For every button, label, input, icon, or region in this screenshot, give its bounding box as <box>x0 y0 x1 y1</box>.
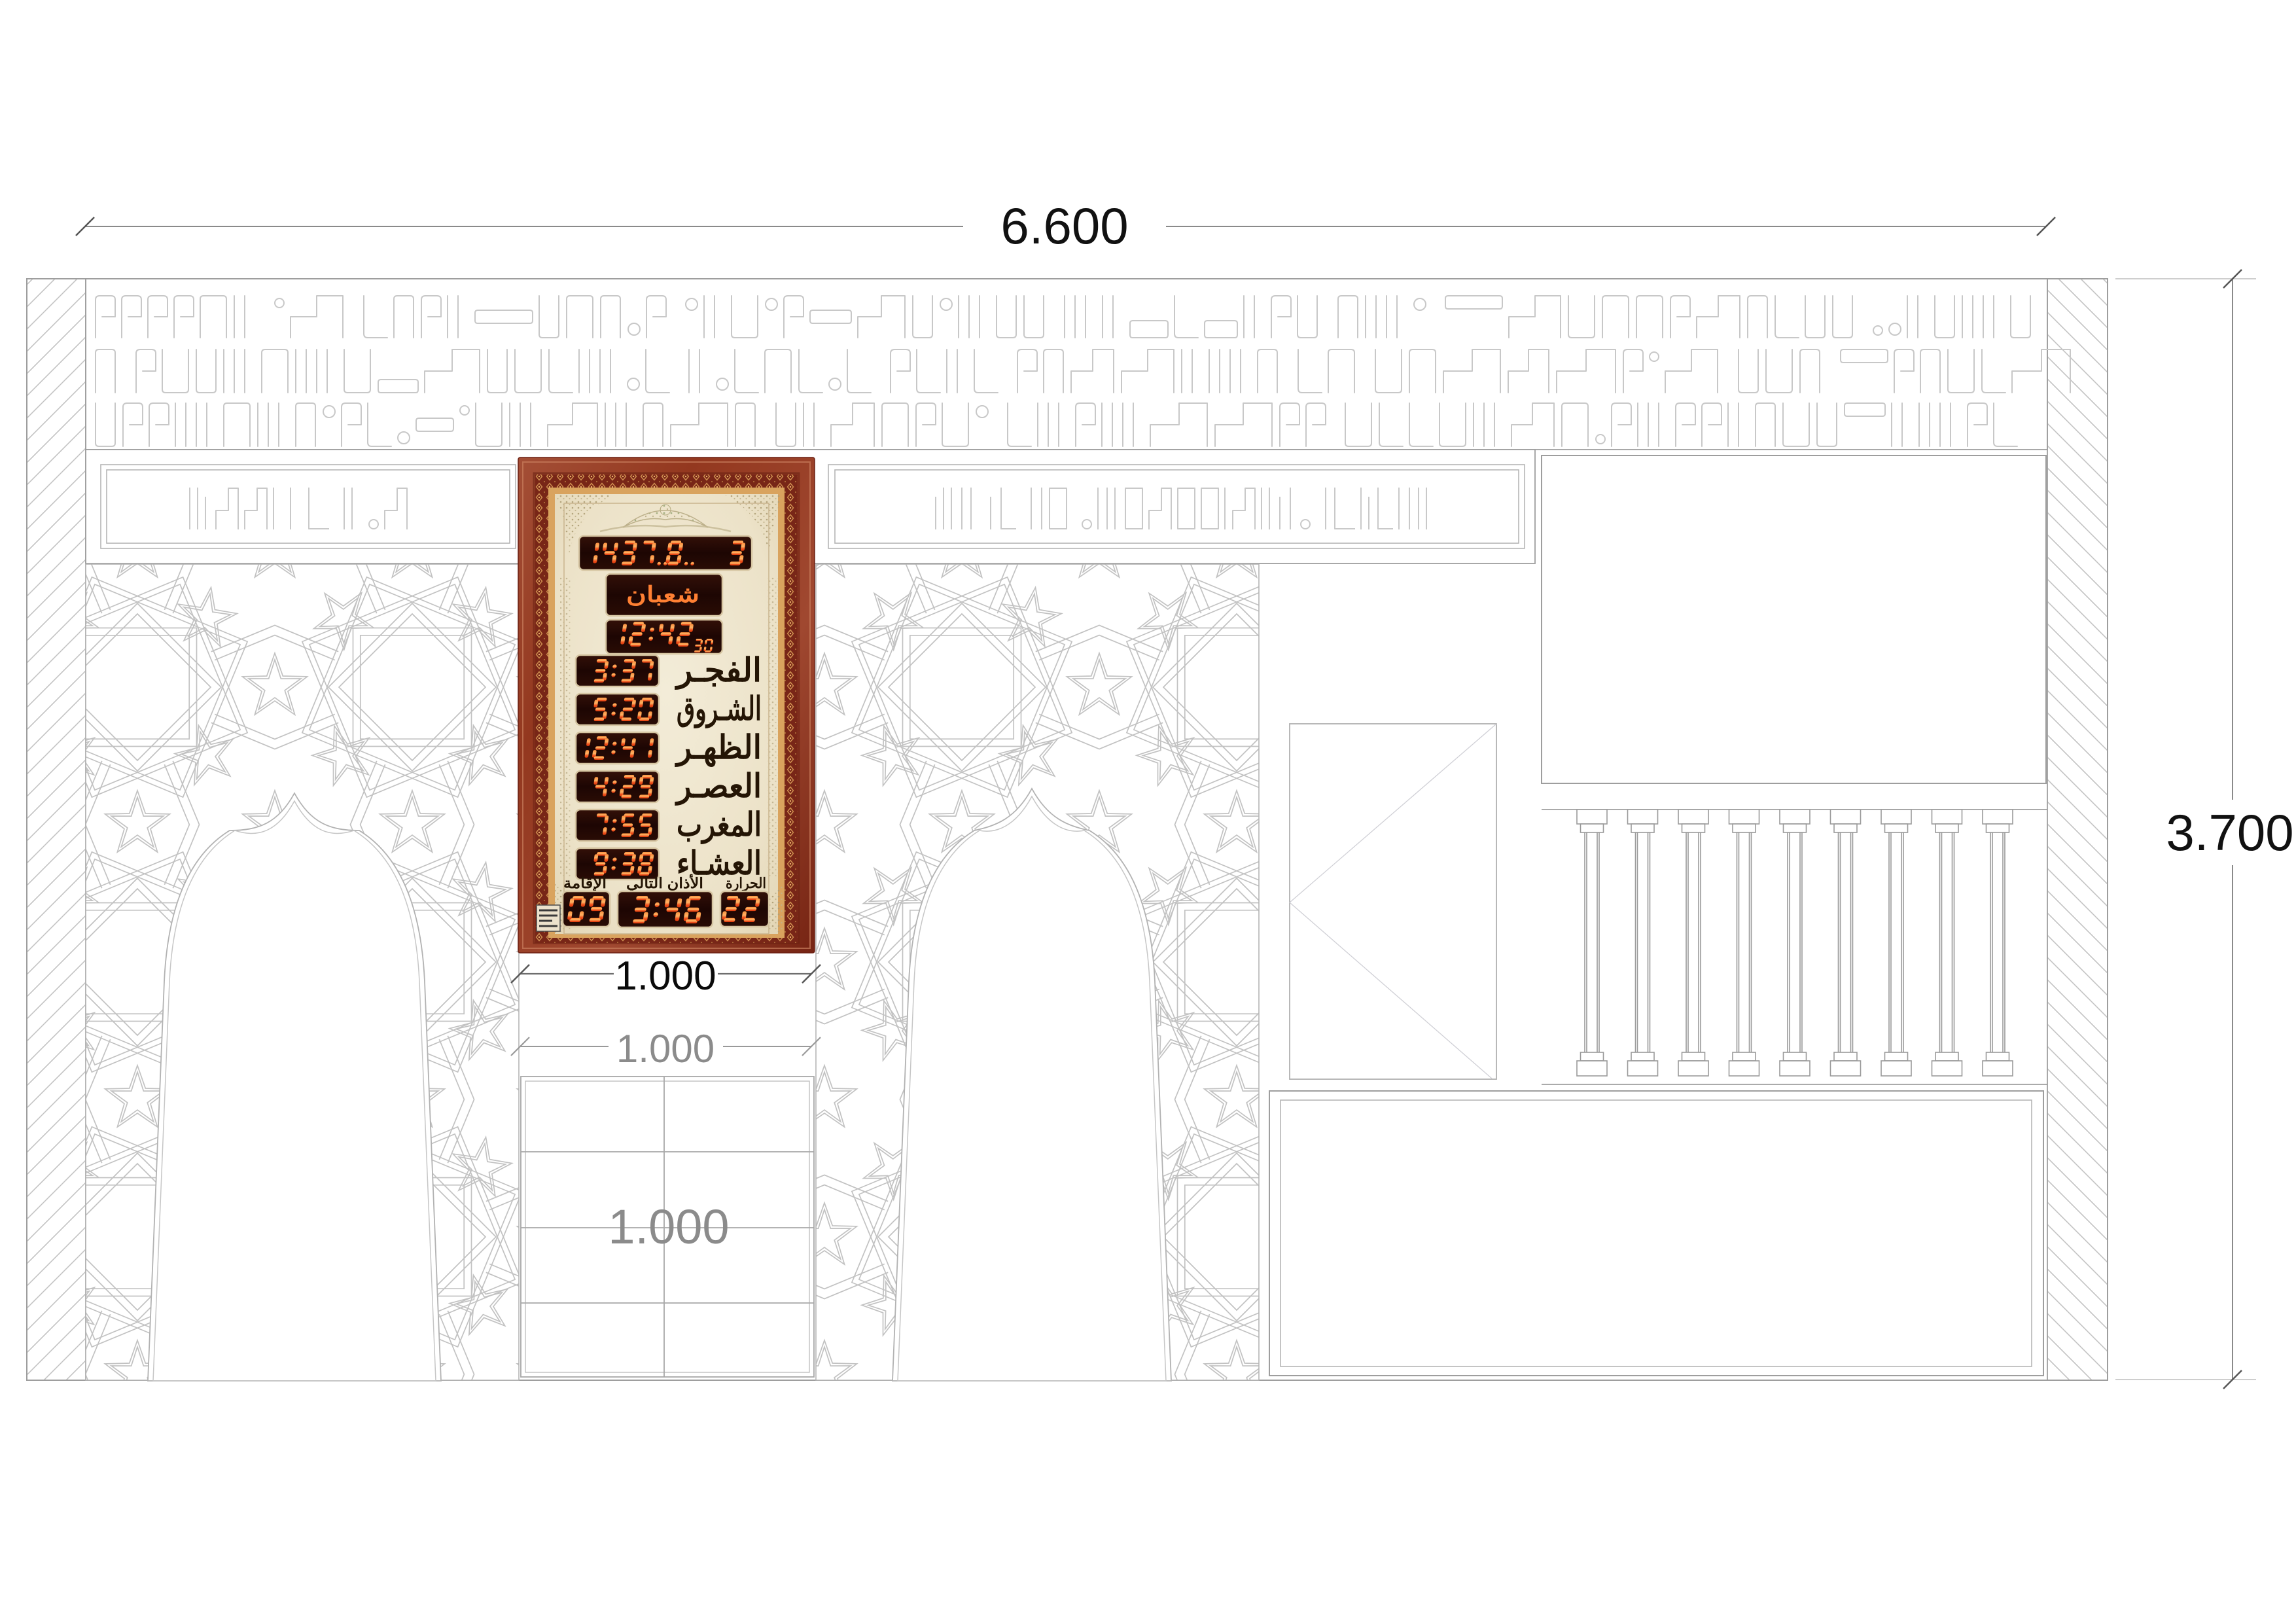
svg-text:الفجـر: الفجـر <box>675 652 762 690</box>
svg-text:6.600: 6.600 <box>1000 197 1128 255</box>
svg-text:الأذان التالي: الأذان التالي <box>626 874 703 892</box>
svg-text:1.000: 1.000 <box>614 954 716 999</box>
svg-text:العصـر: العصـر <box>675 768 762 806</box>
svg-text:1.000: 1.000 <box>616 1027 715 1071</box>
svg-text:الحرارة: الحرارة <box>726 875 766 892</box>
svg-text:الشـروق: الشـروق <box>677 690 762 728</box>
svg-text:3.700: 3.700 <box>2166 804 2293 861</box>
svg-text:الظهـر: الظهـر <box>675 729 762 767</box>
svg-text:المغرب: المغرب <box>677 806 762 844</box>
svg-text:الإقامة: الإقامة <box>563 875 607 893</box>
svg-text:شعبان: شعبان <box>626 582 699 607</box>
svg-text:1.000: 1.000 <box>608 1200 729 1254</box>
